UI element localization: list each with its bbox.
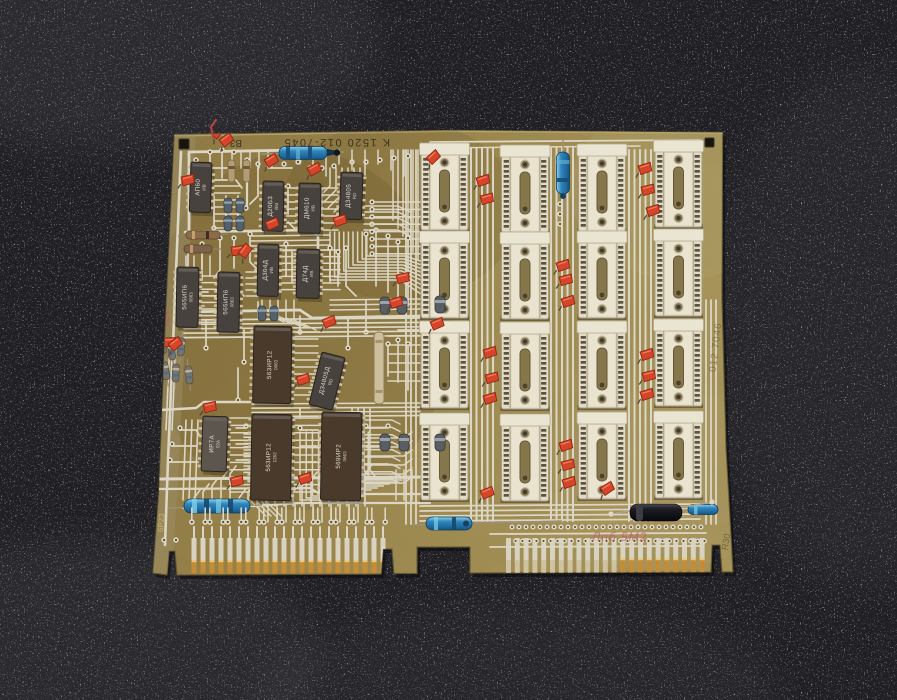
svg-text:RD: RD xyxy=(352,192,357,199)
svg-text:ИВ: ИВ xyxy=(202,184,207,191)
svg-text:0863: 0863 xyxy=(229,297,234,308)
svg-text:ИВ: ИВ xyxy=(269,267,274,273)
svg-text:K 1520 012-7045: K 1520 012-7045 xyxy=(283,136,390,148)
svg-text:0663: 0663 xyxy=(342,451,347,462)
svg-text:ИВ: ИВ xyxy=(311,205,316,211)
svg-text:ИВ: ИВ xyxy=(309,271,314,277)
svg-text:0863: 0863 xyxy=(188,292,193,303)
svg-text:Лпб 5М2: Лпб 5М2 xyxy=(591,530,647,544)
svg-text:0663: 0663 xyxy=(273,359,278,370)
svg-text:6Р23: 6Р23 xyxy=(156,513,166,533)
svg-text:1262: 1262 xyxy=(272,452,277,463)
svg-text:02А: 02А xyxy=(215,439,220,448)
svg-text:ВМ: ВМ xyxy=(274,203,279,210)
